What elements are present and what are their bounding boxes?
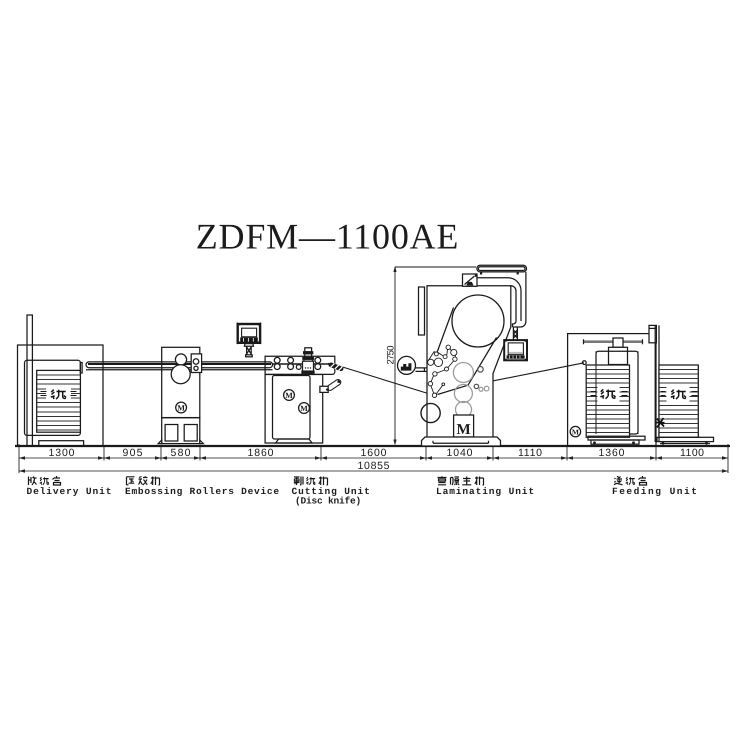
svg-text:905: 905 xyxy=(123,447,143,459)
svg-text:1100: 1100 xyxy=(680,447,704,459)
svg-text:1860: 1860 xyxy=(248,447,274,459)
svg-text:2750: 2750 xyxy=(386,346,397,365)
svg-text:Embossing Rollers Device: Embossing Rollers Device xyxy=(125,486,280,497)
svg-text:M: M xyxy=(572,427,579,436)
svg-text:10855: 10855 xyxy=(358,460,390,472)
svg-text:Feeding Unit: Feeding Unit xyxy=(612,486,698,497)
svg-text:(Disc knife): (Disc knife) xyxy=(295,496,361,507)
svg-text:M: M xyxy=(457,422,471,438)
svg-text:Laminating Unit: Laminating Unit xyxy=(436,486,535,497)
svg-text:1360: 1360 xyxy=(599,447,625,459)
svg-text:ZDFM—1100AE: ZDFM—1100AE xyxy=(196,217,459,257)
svg-text:Delivery Unit: Delivery Unit xyxy=(27,486,113,497)
svg-text:M: M xyxy=(177,403,185,412)
svg-text:1300: 1300 xyxy=(49,447,75,459)
svg-text:580: 580 xyxy=(171,447,191,459)
svg-text:M: M xyxy=(285,391,293,400)
svg-text:1600: 1600 xyxy=(361,447,387,459)
svg-text:1040: 1040 xyxy=(447,447,473,459)
svg-text:1110: 1110 xyxy=(518,447,542,459)
svg-text:M: M xyxy=(300,404,308,413)
